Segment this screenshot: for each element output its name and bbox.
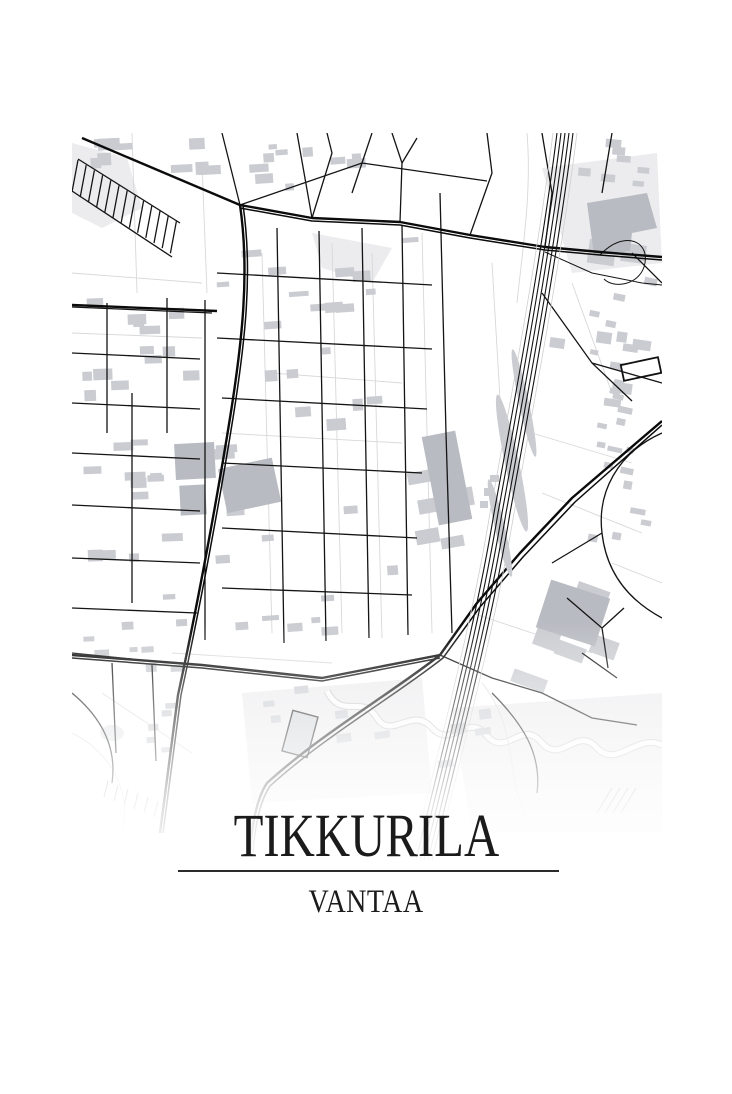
map-fade-overlay	[72, 133, 662, 873]
poster-title: TIKKURILA	[74, 806, 660, 868]
poster-subtitle: VANTAA	[55, 882, 677, 922]
city-map-graphic	[72, 133, 662, 873]
map-poster: TIKKURILA VANTAA	[0, 0, 732, 1094]
title-divider	[178, 870, 559, 872]
map-svg	[72, 133, 662, 873]
